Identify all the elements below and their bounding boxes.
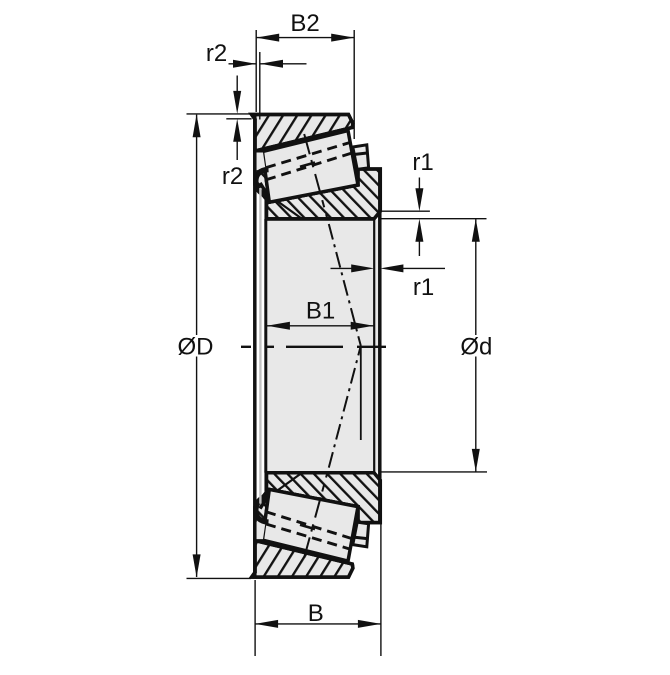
svg-text:r1: r1 <box>412 149 433 176</box>
svg-text:r1: r1 <box>413 274 434 301</box>
svg-text:B2: B2 <box>290 10 319 37</box>
svg-text:r2: r2 <box>222 163 243 190</box>
svg-text:ØD: ØD <box>178 334 214 361</box>
svg-text:B: B <box>308 600 324 627</box>
svg-text:r2: r2 <box>206 40 227 67</box>
svg-text:B1: B1 <box>306 297 335 324</box>
svg-text:Ød: Ød <box>460 334 492 361</box>
